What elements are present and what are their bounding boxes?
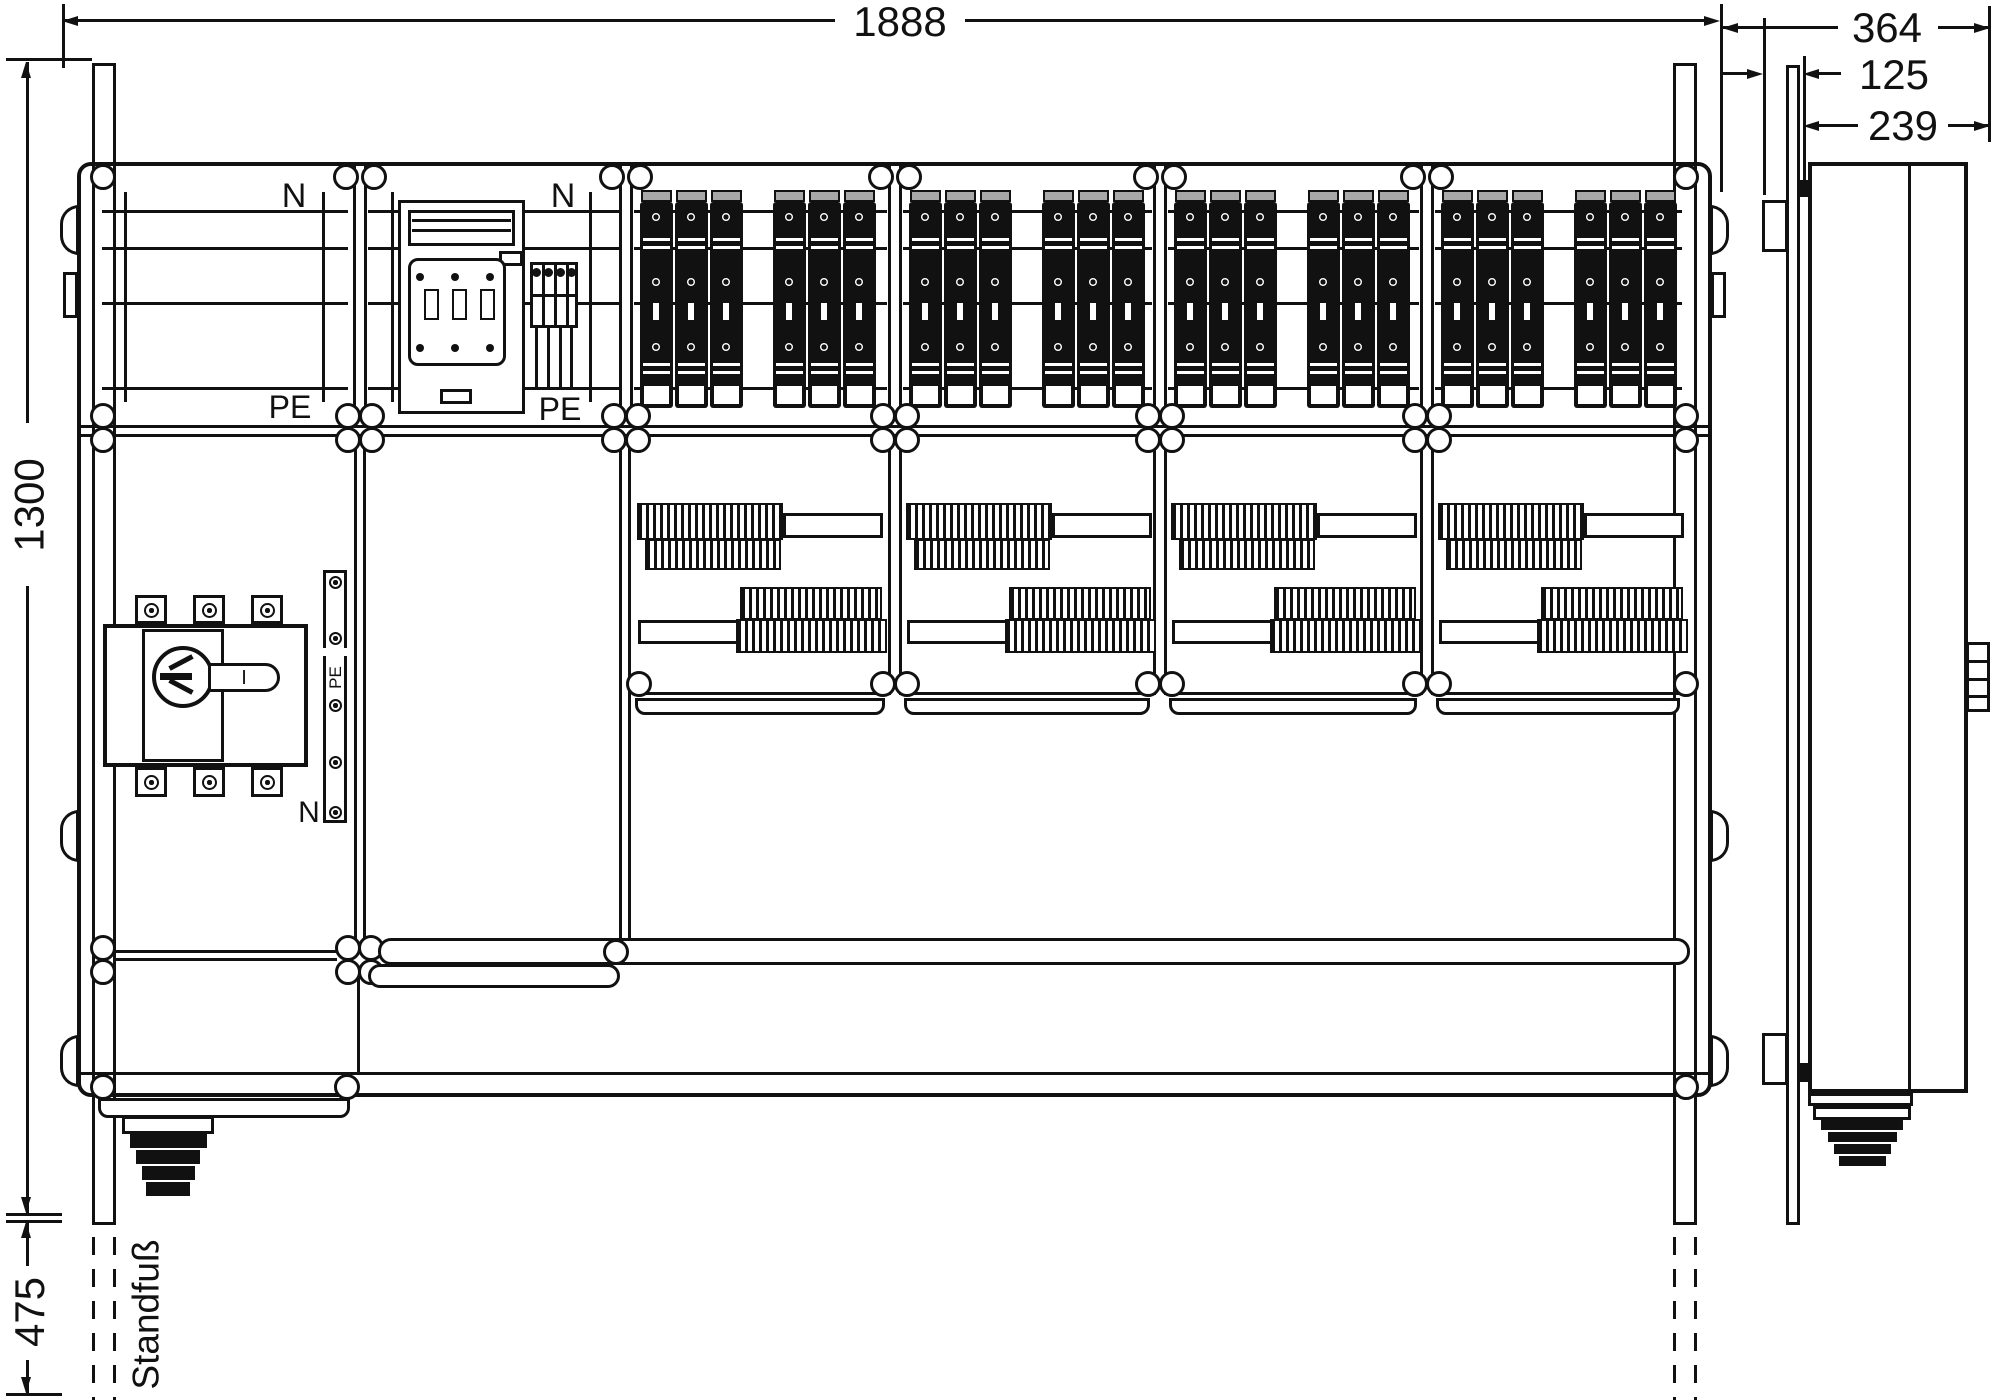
fuse-rail-band: [1247, 371, 1274, 374]
fuse-rail-foot: [983, 386, 1008, 404]
rear-wall-spacer: [1966, 642, 1990, 712]
fuse-rail-band: [1310, 371, 1337, 374]
fuse-rail-screw: [919, 341, 931, 353]
feeder-bar-lower: [638, 620, 740, 644]
comb-busbar-lower: [1009, 587, 1151, 620]
cable-gland-front-step: [142, 1166, 195, 1180]
dim-depth-body-arrow: [1803, 121, 1819, 131]
comb-busbar-upper: [1171, 503, 1317, 540]
fuse-rail-band: [1612, 371, 1639, 374]
fuse-rail-slot: [1257, 303, 1263, 320]
fuse-rail-band: [1080, 238, 1107, 241]
fuse-rail-band: [1577, 363, 1604, 366]
switch-position-label: I: [236, 666, 252, 690]
fuse-rail-band: [713, 246, 740, 249]
fuse-rail-band: [912, 363, 939, 366]
busbar-tap: [589, 192, 592, 402]
fuse-rail-band: [1247, 246, 1274, 249]
terminal-screw: [567, 268, 576, 277]
hinge-circle: [361, 164, 387, 190]
feeder-bar-lower: [1172, 620, 1274, 644]
knob-grip: [160, 673, 192, 680]
fuse-rail-band: [846, 238, 873, 241]
fuse-rail-band: [1177, 238, 1204, 241]
fuse-rail-slot: [1587, 303, 1593, 320]
comb-busbar-lower: [1005, 619, 1156, 653]
hinge-circle: [1402, 671, 1428, 697]
panel-divider: [888, 166, 891, 427]
panel-divider: [1431, 437, 1434, 695]
hinge-circle: [335, 403, 361, 429]
fuse-rail-cap: [1575, 190, 1606, 202]
fuse-rail-band: [912, 246, 939, 249]
fuse-rail-screw: [954, 341, 966, 353]
fuse-rail-screw: [650, 276, 662, 288]
panel-flange-tray: [1169, 698, 1417, 715]
fuse-rail-band: [947, 363, 974, 366]
side-cover-split: [1908, 166, 1911, 1091]
fuse-rail-screw: [989, 276, 1001, 288]
fuse-rail-screw: [650, 211, 662, 223]
hinge-circle: [627, 164, 653, 190]
fuse-rail-band: [1380, 363, 1407, 366]
fuse-rail-slot: [1055, 303, 1061, 320]
fuse-switch-clip: [440, 389, 472, 404]
busbar-tap: [391, 192, 394, 402]
fuse-rail-cap: [676, 190, 707, 202]
fuse-carrier-rivet: [486, 273, 494, 281]
fuse-rail-cap: [1610, 190, 1641, 202]
dim-stand-tick: [6, 1220, 62, 1223]
fuse-rail-band: [1310, 238, 1337, 241]
fuse-rail-screw: [1521, 341, 1533, 353]
switch-lug-screw: [202, 603, 217, 618]
fuse-rail-screw: [685, 276, 697, 288]
rail-clip: [1799, 1063, 1808, 1082]
switch-lug-screw: [144, 603, 159, 618]
wall-louver-right: [1710, 205, 1729, 255]
fuse-rail-slot: [1524, 303, 1530, 320]
pe-bar-label: PE: [321, 662, 349, 692]
terminal-lead: [570, 328, 573, 387]
wall-knockout-left: [63, 272, 78, 318]
neutral-label: N: [290, 795, 328, 831]
fuse-rail-screw: [818, 276, 830, 288]
fuse-carrier-rivet: [451, 344, 459, 352]
fuse-rail-band: [1177, 363, 1204, 366]
fuse-rail-slot: [922, 303, 928, 320]
fuse-carrier-rivet: [416, 273, 424, 281]
dim-stand-arrow: [21, 1222, 31, 1238]
fuse-rail-band: [1514, 246, 1541, 249]
dim-width-line: [965, 19, 1712, 22]
hinge-circle: [1402, 403, 1428, 429]
fuse-rail-band: [643, 363, 670, 366]
panel-divider: [888, 437, 891, 695]
corner-hinge: [1673, 164, 1699, 190]
wall-louver-left: [60, 1035, 79, 1087]
fuse-rail-screw: [1451, 211, 1463, 223]
dim-height-value-text: 1300: [9, 458, 51, 551]
fuse-rail-screw: [1087, 341, 1099, 353]
wall-bracket-upper: [1762, 200, 1788, 252]
fuse-rail-band: [1479, 371, 1506, 374]
hinge-circle: [1673, 1074, 1699, 1100]
panel-divider: [899, 437, 902, 695]
fuse-carrier-window: [452, 289, 467, 320]
fuse-carrier-window: [480, 289, 495, 320]
hinge-circle: [90, 403, 116, 429]
comb-busbar-upper: [914, 539, 1050, 570]
comb-busbar-upper: [1446, 539, 1582, 570]
fuse-rail-band: [1247, 238, 1274, 241]
fuse-rail-band: [1612, 238, 1639, 241]
fuse-rail-screw: [1317, 211, 1329, 223]
fuse-rail-screw: [1317, 341, 1329, 353]
fuse-rail-screw: [685, 211, 697, 223]
fuse-rail-foot: [1648, 386, 1673, 404]
fuse-rail-screw: [1052, 211, 1064, 223]
duct-hinge: [603, 939, 629, 965]
fuse-rail-foot: [1515, 386, 1540, 404]
fuse-rail-slot: [1454, 303, 1460, 320]
wall-louver-right: [1710, 810, 1729, 862]
panel-divider: [1153, 437, 1156, 695]
cable-gland-front-step: [136, 1150, 200, 1164]
feeder-bar-upper: [1584, 513, 1684, 538]
fuse-rail-cap: [774, 190, 805, 202]
comb-busbar-upper: [906, 503, 1052, 540]
fuse-rail-band: [1212, 238, 1239, 241]
stand-leg-dashed: [92, 1237, 95, 1400]
comb-busbar-lower: [736, 619, 887, 653]
fuse-rail-band: [1647, 363, 1674, 366]
dim-width-line: [62, 19, 835, 22]
fuse-rail-band: [1345, 246, 1372, 249]
fuse-rail-screw: [1219, 276, 1231, 288]
fuse-rail-slot: [688, 303, 694, 320]
fuse-rail-foot: [1381, 386, 1406, 404]
fuse-switch-label-line: [412, 229, 511, 232]
fuse-rail-screw: [853, 276, 865, 288]
dim-depth-total-line: [1722, 26, 1838, 29]
fuse-rail-screw: [720, 341, 732, 353]
feeder-bar-lower: [907, 620, 1009, 644]
fuse-rail-screw: [685, 341, 697, 353]
fuse-rail-band: [811, 238, 838, 241]
hinge-circle: [1159, 671, 1185, 697]
hinge-circle: [1673, 671, 1699, 697]
busbar-line: [102, 302, 348, 305]
fuse-rail-band: [678, 246, 705, 249]
fuse-rail-screw: [1654, 341, 1666, 353]
hinge-circle: [1159, 427, 1185, 453]
dim-depth-front-arrow: [1803, 69, 1819, 79]
dim-depth-front-line: [1819, 72, 1841, 75]
fuse-rail-band: [1310, 246, 1337, 249]
fuse-rail-cap: [1308, 190, 1339, 202]
fuse-rail-band: [846, 363, 873, 366]
stand-leg-dashed: [1694, 1237, 1697, 1400]
fuse-rail-band: [678, 363, 705, 366]
hinge-circle: [1428, 164, 1454, 190]
neutral-label: N: [272, 176, 316, 216]
fuse-rail-band: [811, 246, 838, 249]
fuse-rail-band: [643, 238, 670, 241]
hinge-circle: [359, 427, 385, 453]
fuse-rail-screw: [1486, 276, 1498, 288]
dim-stand-tick: [6, 1393, 62, 1396]
fuse-rail-foot: [812, 386, 837, 404]
fuse-rail-band: [1115, 238, 1142, 241]
fuse-rail-screw: [1486, 211, 1498, 223]
dim-stand-value-text: 475: [9, 1277, 51, 1347]
fuse-carrier-rivet: [416, 344, 424, 352]
pe-bar-screw: [329, 806, 342, 819]
fuse-rail-screw: [720, 211, 732, 223]
fuse-rail-foot: [1578, 386, 1603, 404]
fuse-rail-band: [1479, 238, 1506, 241]
fuse-rail-screw: [818, 211, 830, 223]
wall-louver-right: [1710, 1035, 1729, 1087]
fuse-rail-cap: [1245, 190, 1276, 202]
fuse-rail-slot: [1390, 303, 1396, 320]
comb-busbar-lower: [1537, 619, 1688, 653]
fuse-rail-band: [982, 246, 1009, 249]
feeder-bar-lower: [1439, 620, 1541, 644]
fuse-rail-screw: [1219, 341, 1231, 353]
fuse-rail-foot: [1445, 386, 1470, 404]
hinge-circle: [601, 427, 627, 453]
dim-width-arrow: [1704, 16, 1720, 26]
hinge-circle: [1673, 427, 1699, 453]
hinge-circle: [599, 164, 625, 190]
fuse-rail-foot: [1046, 386, 1071, 404]
fuse-rail-foot: [1116, 386, 1141, 404]
hinge-circle: [1161, 164, 1187, 190]
stand-label-text: Standfuß: [128, 1239, 165, 1389]
cable-gland-front-step: [146, 1182, 190, 1196]
stand-label: Standfuß: [108, 1228, 184, 1400]
fuse-switch-label-window: [408, 210, 515, 246]
hinge-circle: [334, 1074, 360, 1100]
fuse-rail-slot: [723, 303, 729, 320]
fuse-rail-slot: [786, 303, 792, 320]
dim-depth-front-arrow: [1747, 69, 1763, 79]
fuse-rail-screw: [989, 341, 1001, 353]
fuse-rail-band: [1177, 371, 1204, 374]
hinge-circle: [1673, 403, 1699, 429]
fuse-rail-band: [1080, 371, 1107, 374]
hinge-circle: [894, 427, 920, 453]
fuse-rail-screw: [919, 211, 931, 223]
fuse-rail-foot: [714, 386, 739, 404]
fuse-rail-band: [776, 371, 803, 374]
comb-busbar-lower: [1270, 619, 1421, 653]
hinge-circle: [870, 403, 896, 429]
hinge-circle: [625, 427, 651, 453]
dim-stand-arrow: [21, 1377, 31, 1393]
cable-gland-side-step: [1813, 1106, 1911, 1120]
fuse-rail-screw: [1584, 276, 1596, 288]
panel-divider: [363, 437, 366, 946]
fuse-rail-band: [1444, 363, 1471, 366]
fuse-rail-band: [1444, 238, 1471, 241]
hinge-circle: [359, 403, 385, 429]
fuse-rail-band: [1514, 363, 1541, 366]
fuse-rail-slot: [1657, 303, 1663, 320]
fuse-rail-band: [1444, 246, 1471, 249]
fuse-rail-foot: [847, 386, 872, 404]
fuse-rail-band: [1514, 238, 1541, 241]
fuse-rail-slot: [957, 303, 963, 320]
panel-bottom-edge: [903, 692, 1152, 695]
fuse-rail-band: [643, 371, 670, 374]
comb-busbar-upper: [1179, 539, 1315, 570]
fuse-rail-foot: [1311, 386, 1336, 404]
dim-height-line: [26, 586, 29, 1215]
fuse-rail-band: [947, 371, 974, 374]
fuse-rail-screw: [954, 211, 966, 223]
terminal-lead: [535, 328, 538, 387]
fuse-rail-cap: [1442, 190, 1473, 202]
fuse-rail-band: [947, 246, 974, 249]
fuse-rail-band: [1045, 371, 1072, 374]
switch-lug-screw: [260, 603, 275, 618]
hinge-circle: [601, 403, 627, 429]
fuse-rail-band: [1177, 246, 1204, 249]
terminal-lead: [559, 328, 562, 387]
panel-flange-tray: [635, 698, 885, 715]
fuse-rail-screw: [1052, 276, 1064, 288]
busbar-tap: [322, 192, 325, 402]
fuse-rail-screw: [919, 276, 931, 288]
hinge-circle: [90, 935, 116, 961]
fuse-rail-cap: [809, 190, 840, 202]
fuse-rail-band: [912, 371, 939, 374]
pe-bar-screw: [329, 576, 342, 589]
fuse-rail-foot: [1613, 386, 1638, 404]
hinge-circle: [1135, 427, 1161, 453]
fuse-rail-band: [1345, 371, 1372, 374]
switch-lug-screw: [260, 775, 275, 790]
fuse-rail-screw: [1087, 276, 1099, 288]
cable-gland-side-step: [1821, 1120, 1903, 1130]
panel-divider: [1164, 437, 1167, 695]
panel-divider: [899, 166, 902, 427]
dim-height-line: [26, 62, 29, 423]
fuse-rail-screw: [1317, 276, 1329, 288]
fuse-rail-screw: [989, 211, 1001, 223]
hinge-circle: [1135, 671, 1161, 697]
fuse-rail-screw: [954, 276, 966, 288]
fuse-rail-screw: [1052, 341, 1064, 353]
cable-gland-side-step: [1834, 1144, 1891, 1154]
fuse-rail-slot: [1222, 303, 1228, 320]
fuse-rail-screw: [1654, 276, 1666, 288]
fuse-rail-band: [1115, 363, 1142, 366]
comb-busbar-lower: [1541, 587, 1683, 620]
fuse-carrier-window: [424, 289, 439, 320]
fuse-carrier-rivet: [451, 273, 459, 281]
cable-gland-side-step: [1839, 1156, 1886, 1166]
fuse-rail-band: [1647, 246, 1674, 249]
dim-height-arrow: [21, 1197, 31, 1213]
panel-bottom-edge: [115, 950, 337, 953]
fuse-rail-cap: [711, 190, 742, 202]
side-body-outline: [1808, 162, 1968, 1093]
comb-busbar-lower: [740, 587, 882, 620]
fuse-rail-cap: [980, 190, 1011, 202]
fuse-rail-screw: [1219, 211, 1231, 223]
comb-busbar-upper: [637, 503, 783, 540]
rear-spacer-line: [1968, 678, 1990, 681]
terminal-lead: [547, 328, 550, 387]
fuse-rail-screw: [1451, 341, 1463, 353]
feeder-bar-upper: [1317, 513, 1417, 538]
fuse-rail-band: [846, 371, 873, 374]
panel-divider: [354, 437, 357, 946]
fuse-rail-screw: [783, 276, 795, 288]
hinge-circle: [1135, 403, 1161, 429]
cable-tray: [368, 964, 620, 988]
fuse-rail-screw: [1122, 276, 1134, 288]
panel-divider: [1420, 166, 1423, 427]
fuse-carrier-rivet: [486, 344, 494, 352]
fuse-switch-label-line: [412, 219, 511, 222]
neutral-label: N: [541, 176, 585, 216]
fuse-rail-screw: [1584, 341, 1596, 353]
fuse-rail-band: [1444, 371, 1471, 374]
fuse-rail-slot: [1355, 303, 1361, 320]
fuse-rail-band: [1479, 363, 1506, 366]
fuse-rail-band: [1045, 363, 1072, 366]
fuse-rail-cap: [1378, 190, 1409, 202]
comb-busbar-upper: [1438, 503, 1584, 540]
fuse-rail-screw: [853, 211, 865, 223]
fuse-rail-band: [1479, 246, 1506, 249]
fuse-rail-slot: [821, 303, 827, 320]
panel-divider: [1431, 166, 1434, 427]
panel-bottom-edge: [634, 692, 887, 695]
side-mounting-rail: [1786, 65, 1800, 1225]
fuse-rail-cap: [1477, 190, 1508, 202]
stand-leg-dashed: [1673, 1237, 1676, 1400]
fuse-rail-band: [1045, 238, 1072, 241]
fuse-rail-band: [1577, 371, 1604, 374]
hinge-circle: [1400, 164, 1426, 190]
hinge-circle: [870, 427, 896, 453]
dim-depth-body-value: 239: [1856, 104, 1950, 148]
terminal-screw: [532, 268, 541, 277]
feeder-bar-upper: [783, 513, 883, 538]
side-bottom-lip: [1808, 1093, 1913, 1106]
fuse-rail-band: [982, 363, 1009, 366]
fuse-rail-cap: [1175, 190, 1206, 202]
fuse-rail-band: [1212, 371, 1239, 374]
fuse-rail-foot: [1346, 386, 1371, 404]
hinge-circle: [894, 671, 920, 697]
dim-depth-body-arrow: [1974, 121, 1990, 131]
fuse-rail-cap: [1113, 190, 1144, 202]
fuse-rail-foot: [1178, 386, 1203, 404]
panel-divider: [630, 166, 633, 427]
cable-gland-side-step: [1828, 1132, 1897, 1142]
fuse-rail-cap: [1210, 190, 1241, 202]
fuse-rail-cap: [641, 190, 672, 202]
fuse-rail-slot: [1187, 303, 1193, 320]
busbar-tap: [124, 192, 127, 402]
